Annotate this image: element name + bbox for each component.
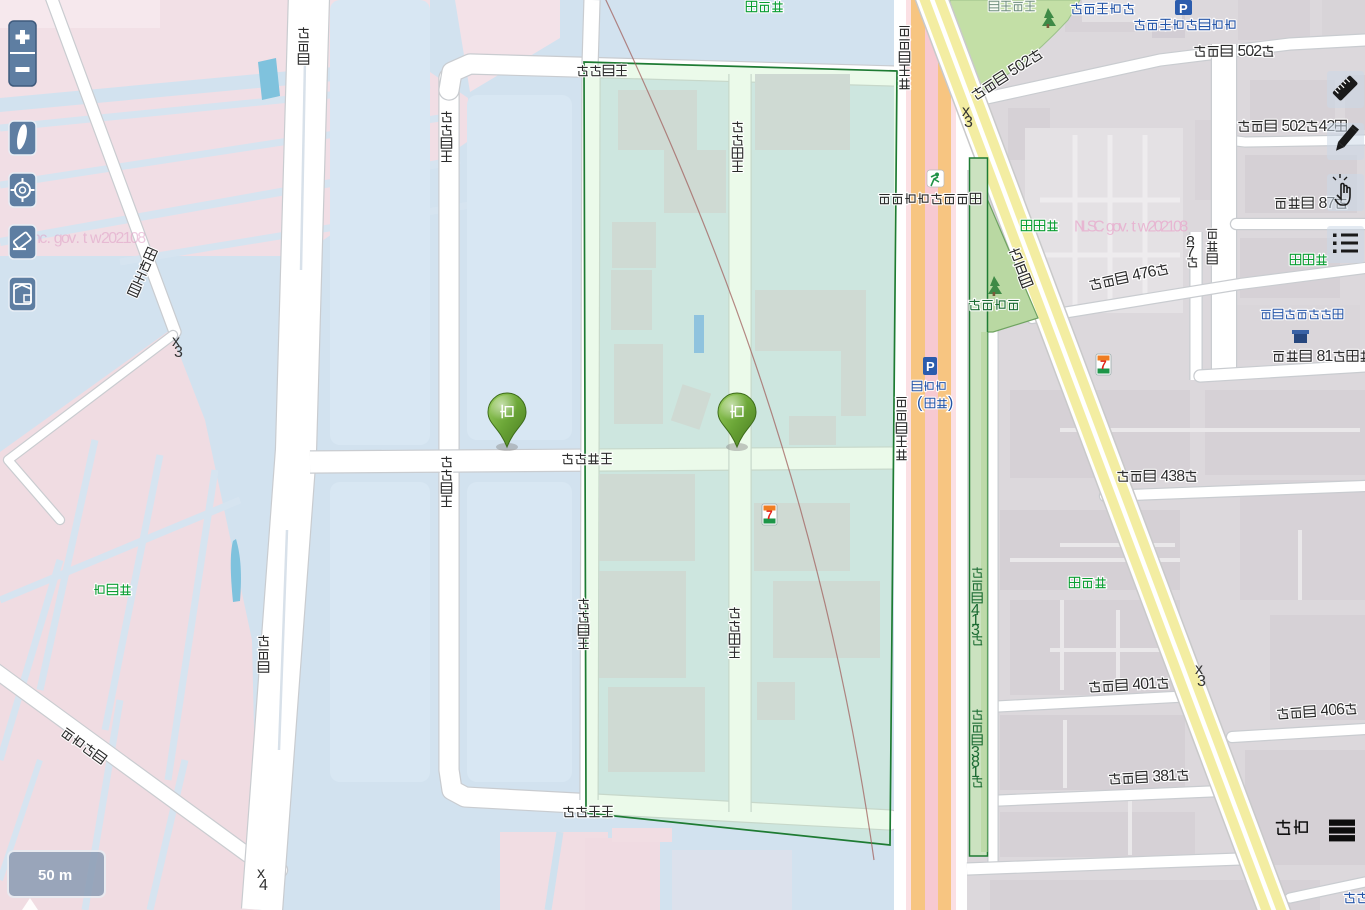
svg-text:1: 1 — [971, 764, 980, 781]
svg-text:(: ( — [917, 395, 923, 412]
svg-text:3: 3 — [964, 114, 973, 131]
svg-text:P: P — [1179, 1, 1188, 16]
svg-text:7: 7 — [1100, 358, 1107, 372]
svg-text:7: 7 — [766, 508, 773, 522]
svg-text:): ) — [948, 395, 953, 412]
svg-text:.: . — [76, 230, 80, 247]
svg-text:P: P — [926, 359, 935, 374]
svg-text:50 m: 50 m — [38, 867, 72, 884]
svg-text:1: 1 — [1148, 675, 1158, 692]
svg-text:8: 8 — [1176, 468, 1185, 485]
svg-text:.: . — [47, 230, 51, 247]
svg-text:2: 2 — [1253, 43, 1262, 60]
svg-text:t: t — [83, 230, 88, 247]
svg-text:3: 3 — [174, 344, 183, 361]
svg-text:1: 1 — [1168, 767, 1178, 784]
svg-text:.: . — [1100, 219, 1104, 236]
svg-text:2: 2 — [1297, 118, 1306, 135]
svg-text:t: t — [1131, 219, 1136, 236]
svg-text:6: 6 — [1335, 701, 1345, 719]
svg-text:7: 7 — [1186, 244, 1195, 261]
svg-text:3: 3 — [1197, 673, 1206, 690]
svg-text:1: 1 — [1324, 348, 1333, 365]
svg-text:8: 8 — [137, 230, 146, 247]
svg-text:4: 4 — [259, 877, 268, 894]
svg-text:3: 3 — [971, 622, 980, 639]
svg-text:8: 8 — [1179, 219, 1188, 236]
svg-text:.: . — [1125, 219, 1129, 236]
